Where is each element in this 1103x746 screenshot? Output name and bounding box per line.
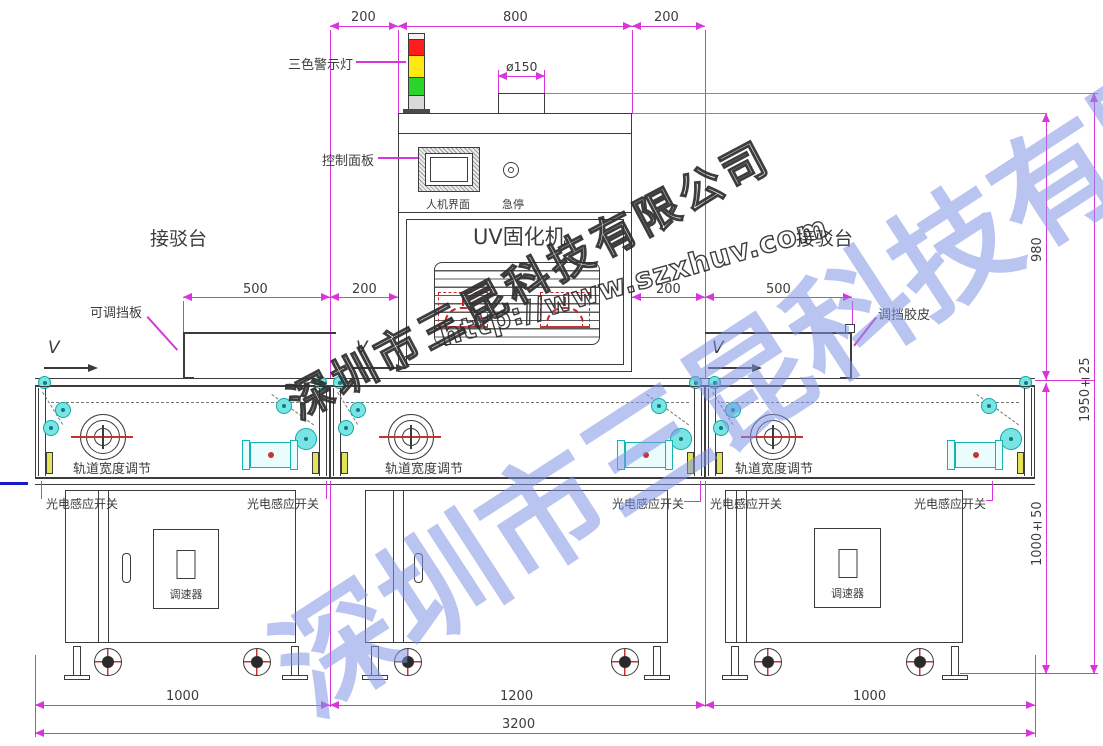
belt-return-line [346,402,689,403]
door-stile [108,491,109,642]
dim-bottom-center: 1200 [500,689,533,704]
ext-line [398,30,399,113]
dim-arrow [1026,729,1035,737]
roller [725,402,741,418]
bottom-rail [330,478,705,485]
handwheel-spoke [102,425,104,449]
door-handle[interactable] [414,553,423,583]
foot-plate [282,675,308,680]
belt-rail [705,378,1035,386]
dim-arrow [498,72,507,80]
dim-right-500: 500 [766,282,791,297]
estop-label: 急停 [502,196,524,212]
dim-left-200: 200 [352,282,377,297]
dim-bottom-right: 1000 [853,689,886,704]
roller [55,402,71,418]
motor-flange [290,440,298,470]
emergency-stop-button-inner [508,167,514,173]
left-baffle-plate [183,332,185,379]
ext-line [1035,655,1036,737]
dim-arrow [705,293,714,301]
blue-edge-mark [0,482,28,485]
motor-flange [995,440,1003,470]
caster-wheel [906,648,934,676]
dim-table-height: 1000±50 [1030,490,1045,566]
cabinet [365,490,668,643]
roller [981,398,997,414]
right-station-title: 接驳台 [796,224,853,251]
leveling-foot [653,646,661,676]
hmi-label: 人机界面 [426,196,470,212]
roller [651,398,667,414]
direction-v-middle: V [356,338,368,358]
foot-plate [942,675,968,680]
caster-wheel [394,648,422,676]
photo-sensor [687,452,694,474]
cabinet: 调速器 [725,490,963,643]
dim-duct: ø150 [506,59,538,74]
bottom-rail [705,478,1035,485]
motor-flange [617,440,625,470]
dim-arrow [330,701,339,709]
ext-line [545,93,1098,94]
leader-line [378,157,418,159]
photo-sensor-label: 光电感应开关 [710,495,782,512]
uv-curing-machine-drawing: 200 800 200 三色警示灯 ø150 人机界面 急停 控制面板 UV固化… [0,0,1103,746]
door-stile [746,491,747,642]
ext-line [498,70,499,93]
left-station-title: 接驳台 [150,224,207,251]
photo-sensor-label: 光电感应开关 [46,495,118,512]
dim-arrow [389,293,398,301]
handwheel-spoke [410,425,412,449]
left-baffle-top [183,332,336,334]
door-stile [393,491,394,642]
ext-line [35,655,36,737]
tower-light-green [408,77,425,96]
tower-light-yellow [408,55,425,78]
leveling-foot [371,646,379,676]
leader-line [992,481,993,501]
tension-roller [670,428,692,450]
adjustable-baffle-label: 可调挡板 [90,302,142,321]
machine-top-strip [398,113,632,134]
dim-left-500: 500 [243,282,268,297]
direction-arrow-line [352,367,397,369]
direction-arrowhead [752,364,762,372]
motor-flange [665,440,673,470]
roller [276,398,292,414]
motor-flange [242,440,250,470]
roller [350,402,366,418]
photo-sensor [46,452,53,474]
belt-rail [330,378,705,386]
handwheel-spoke [772,425,774,449]
tower-light-base [408,95,425,110]
dim-arrow [1026,701,1035,709]
warning-light-label: 三色警示灯 [288,54,353,73]
dim-arrow [696,293,705,301]
photo-sensor [716,452,723,474]
leader-line [854,317,877,346]
speed-controller-label: 调速器 [154,586,218,602]
direction-v-left: V [48,338,60,358]
dim-line [183,297,398,298]
dim-arrow [632,293,641,301]
ext-line [330,30,331,378]
frame-post [319,388,327,476]
lamp-baseline [540,326,590,328]
dim-arrow [1042,113,1050,122]
motor-shaft-dot [268,452,274,458]
leader-line [326,481,327,499]
dim-arrow [35,729,44,737]
foot-plate [362,675,388,680]
dim-arrow [1042,383,1050,392]
right-baffle-top [705,332,852,334]
dim-right-200: 200 [656,282,681,297]
dim-machine-height: 980 [1030,218,1045,262]
motor-shaft-dot [973,452,979,458]
dim-line [632,297,852,298]
ext-line [330,481,331,707]
motor-shaft-dot [643,452,649,458]
leveling-foot [73,646,81,676]
direction-arrow-line [708,367,753,369]
photo-sensor-label: 光电感应开关 [247,495,319,512]
door-handle[interactable] [122,553,131,583]
tower-light-red [408,39,425,56]
caster-wheel [94,648,122,676]
uv-lamp-symbol [540,292,590,327]
dim-bottom-total: 3200 [502,717,535,732]
dim-arrow [623,22,632,30]
tension-roller [295,428,317,450]
frame-post [694,388,702,476]
caster-wheel [611,648,639,676]
dim-total-height: 1950±25 [1078,344,1093,422]
dim-arrow [330,22,339,30]
direction-arrowhead [396,364,406,372]
speed-controller-dial[interactable] [177,550,196,579]
door-stile [403,491,404,642]
leader-line [684,501,701,502]
track-width-label: 轨道宽度调节 [385,458,463,477]
baffle-rubber-label: 调挡胶皮 [878,304,930,323]
dim-arrow [1042,371,1050,380]
dim-arrow [696,701,705,709]
right-baffle-mount [845,324,855,333]
leveling-foot [291,646,299,676]
belt-return-line [721,402,1019,403]
direction-v-right: V [712,338,724,358]
caster-wheel [754,648,782,676]
left-conveyor-table: 轨道宽度调节 调速器 [35,378,330,684]
photo-sensor [341,452,348,474]
ext-line [632,30,633,113]
roller [43,420,59,436]
caster-wheel [243,648,271,676]
lamp-baseline [438,326,488,328]
roller [713,420,729,436]
dim-top-left: 200 [351,10,376,25]
dim-arrow [35,701,44,709]
frame-post [1024,388,1032,476]
leveling-foot [951,646,959,676]
dim-arrow [183,293,192,301]
track-width-label: 轨道宽度调节 [73,458,151,477]
dim-top-right: 200 [654,10,679,25]
uv-lamp-symbol [438,292,488,327]
dim-line [330,26,705,27]
leader-line [147,316,178,350]
ext-line [183,301,184,332]
right-conveyor-table: 轨道宽度调节 调速器 [705,378,1035,684]
dim-arrow [321,293,330,301]
dim-arrow [705,701,714,709]
leader-line [356,61,406,63]
tension-roller [1000,428,1022,450]
dim-arrow [1090,93,1098,102]
leveling-foot [731,646,739,676]
photo-sensor-label: 光电感应开关 [612,495,684,512]
hmi-screen-inner [430,157,468,182]
photo-sensor [1017,452,1024,474]
ext-line [544,70,545,93]
speed-controller-label: 调速器 [815,585,880,601]
speed-controller-panel: 调速器 [153,529,219,609]
foot-plate [722,675,748,680]
dim-arrow [696,22,705,30]
belt-rail [35,378,330,386]
dim-line [1046,113,1047,380]
control-panel-label: 控制面板 [322,150,374,169]
track-width-label: 轨道宽度调节 [735,458,813,477]
dim-arrow [843,293,852,301]
ext-line [960,673,1098,674]
dim-arrow [389,22,398,30]
leader-line [41,481,42,499]
exhaust-duct [498,93,545,114]
ext-line [705,481,706,707]
roller [338,420,354,436]
cabinet: 调速器 [65,490,296,643]
dim-line [35,733,1035,734]
ext-line [705,30,706,378]
bottom-rail [35,478,330,485]
direction-arrowhead [88,364,98,372]
ext-line [632,113,1046,114]
leader-line [700,481,701,502]
foot-plate [644,675,670,680]
motor-flange [947,440,955,470]
dim-bottom-left: 1000 [166,689,199,704]
speed-controller-dial[interactable] [838,549,857,578]
photo-sensor [312,452,319,474]
dim-arrow [632,22,641,30]
dim-top-center: 800 [503,10,528,25]
door-stile [736,491,737,642]
dim-arrow [321,701,330,709]
door-stile [98,491,99,642]
dim-arrow [398,22,407,30]
machine-name: UV固化机 [473,221,566,251]
photo-sensor-label: 光电感应开关 [914,495,986,512]
dim-line [1094,93,1095,674]
dim-arrow [330,293,339,301]
middle-conveyor-table: 轨道宽度调节 [330,378,705,684]
belt-return-line [51,402,314,403]
dim-line [35,705,1035,706]
dim-line [1046,383,1047,674]
speed-controller-panel: 调速器 [814,528,881,608]
foot-plate [64,675,90,680]
direction-arrow-line [44,367,89,369]
right-baffle-plate [850,332,852,379]
